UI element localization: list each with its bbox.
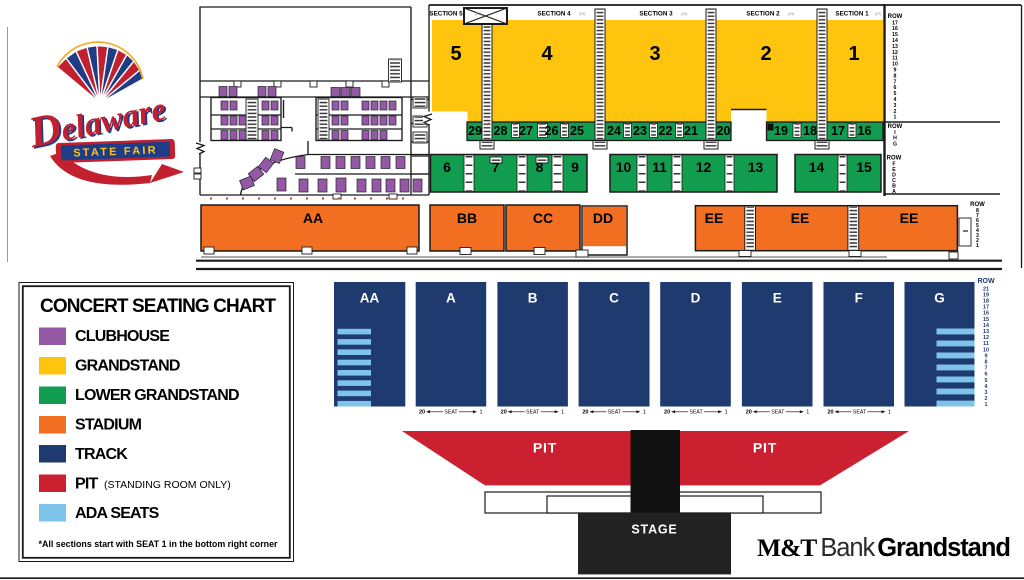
svg-text:20: 20 [419, 410, 425, 416]
svg-text:F: F [855, 291, 863, 306]
svg-text:12: 12 [696, 159, 712, 175]
svg-text:*All sections start with SEAT: *All sections start with SEAT 1 in the b… [39, 539, 279, 549]
svg-text:27: 27 [519, 124, 533, 138]
svg-text:(31): (31) [475, 12, 481, 16]
svg-text:28: 28 [494, 124, 508, 138]
svg-text:3: 3 [649, 43, 660, 65]
svg-text:1: 1 [848, 43, 859, 65]
svg-text:FEDCBA: FEDCBA [892, 162, 896, 196]
svg-text:1: 1 [479, 410, 482, 416]
svg-text:C: C [609, 291, 619, 306]
svg-text:24: 24 [607, 124, 621, 138]
svg-text:21: 21 [684, 124, 698, 138]
svg-text:11: 11 [652, 159, 667, 175]
svg-text:PIT: PIT [753, 440, 777, 456]
svg-text:18: 18 [803, 124, 817, 138]
svg-text:(STANDING ROOM ONLY): (STANDING ROOM ONLY) [104, 479, 231, 491]
svg-text:GRANDSTAND: GRANDSTAND [75, 358, 180, 375]
svg-text:87654321: 87654321 [976, 208, 979, 249]
svg-text:5: 5 [450, 43, 461, 65]
svg-text:(29): (29) [681, 12, 687, 16]
svg-text:IHG: IHG [893, 130, 897, 147]
svg-text:15: 15 [856, 159, 872, 175]
svg-text:SECTION 3: SECTION 3 [639, 11, 673, 18]
svg-text:29: 29 [468, 124, 482, 138]
svg-text:25: 25 [570, 124, 584, 138]
svg-text:ROW: ROW [977, 278, 995, 285]
svg-text:G: G [934, 291, 945, 306]
svg-text:DD: DD [593, 210, 613, 226]
svg-text:AA: AA [303, 210, 323, 226]
svg-text:20: 20 [717, 124, 731, 138]
svg-text:19: 19 [774, 124, 788, 138]
svg-text:14: 14 [809, 159, 825, 175]
svg-text:EE: EE [900, 210, 919, 226]
svg-text:SECTION 4: SECTION 4 [537, 11, 571, 18]
svg-text:D: D [691, 291, 701, 306]
svg-text:CLUBHOUSE: CLUBHOUSE [75, 328, 170, 345]
svg-text:PIT: PIT [533, 440, 557, 456]
svg-text:SECTION 1: SECTION 1 [835, 11, 869, 18]
svg-text:E: E [773, 291, 782, 306]
svg-text:6: 6 [443, 159, 451, 175]
svg-text:1716151413121110987654321: 1716151413121110987654321 [892, 20, 898, 120]
svg-text:SECTION 5: SECTION 5 [429, 11, 463, 18]
svg-text:EE: EE [705, 210, 724, 226]
svg-text:(29): (29) [579, 12, 585, 16]
svg-text:ROW: ROW [888, 14, 903, 20]
svg-text:STAGE: STAGE [631, 523, 677, 537]
svg-text:A: A [446, 291, 456, 306]
svg-text:211918171615141312111098765432: 2119181716151413121110987654321 [983, 286, 989, 408]
svg-text:M&TBankGrandstand: M&TBankGrandstand [757, 533, 1010, 562]
svg-text:(29): (29) [788, 12, 794, 16]
svg-text:B: B [528, 291, 538, 306]
svg-text:4: 4 [541, 43, 553, 65]
svg-text:16: 16 [858, 124, 872, 138]
svg-text:EE: EE [791, 210, 810, 226]
svg-text:17: 17 [831, 124, 845, 138]
svg-text:(27): (27) [875, 12, 881, 16]
svg-text:SECTION 2: SECTION 2 [746, 11, 780, 18]
svg-text:23: 23 [633, 124, 647, 138]
svg-text:BB: BB [457, 210, 477, 226]
svg-text:CC: CC [533, 210, 553, 226]
svg-text:13: 13 [748, 159, 764, 175]
svg-text:9: 9 [571, 159, 579, 175]
svg-text:TRACK: TRACK [75, 446, 128, 463]
svg-text:ADA SEATS: ADA SEATS [75, 505, 160, 522]
svg-text:2: 2 [760, 43, 771, 65]
svg-text:AA: AA [360, 291, 380, 306]
svg-text:ROW: ROW [887, 156, 902, 162]
svg-text:STADIUM: STADIUM [75, 417, 142, 434]
svg-text:10: 10 [616, 159, 632, 175]
svg-text:SEAT: SEAT [444, 410, 458, 416]
svg-text:CONCERT SEATING CHART: CONCERT SEATING CHART [40, 296, 276, 317]
svg-text:PIT: PIT [75, 476, 99, 493]
svg-text:LOWER GRANDSTAND: LOWER GRANDSTAND [75, 387, 239, 404]
svg-text:22: 22 [659, 124, 673, 138]
svg-text:26: 26 [545, 124, 559, 138]
